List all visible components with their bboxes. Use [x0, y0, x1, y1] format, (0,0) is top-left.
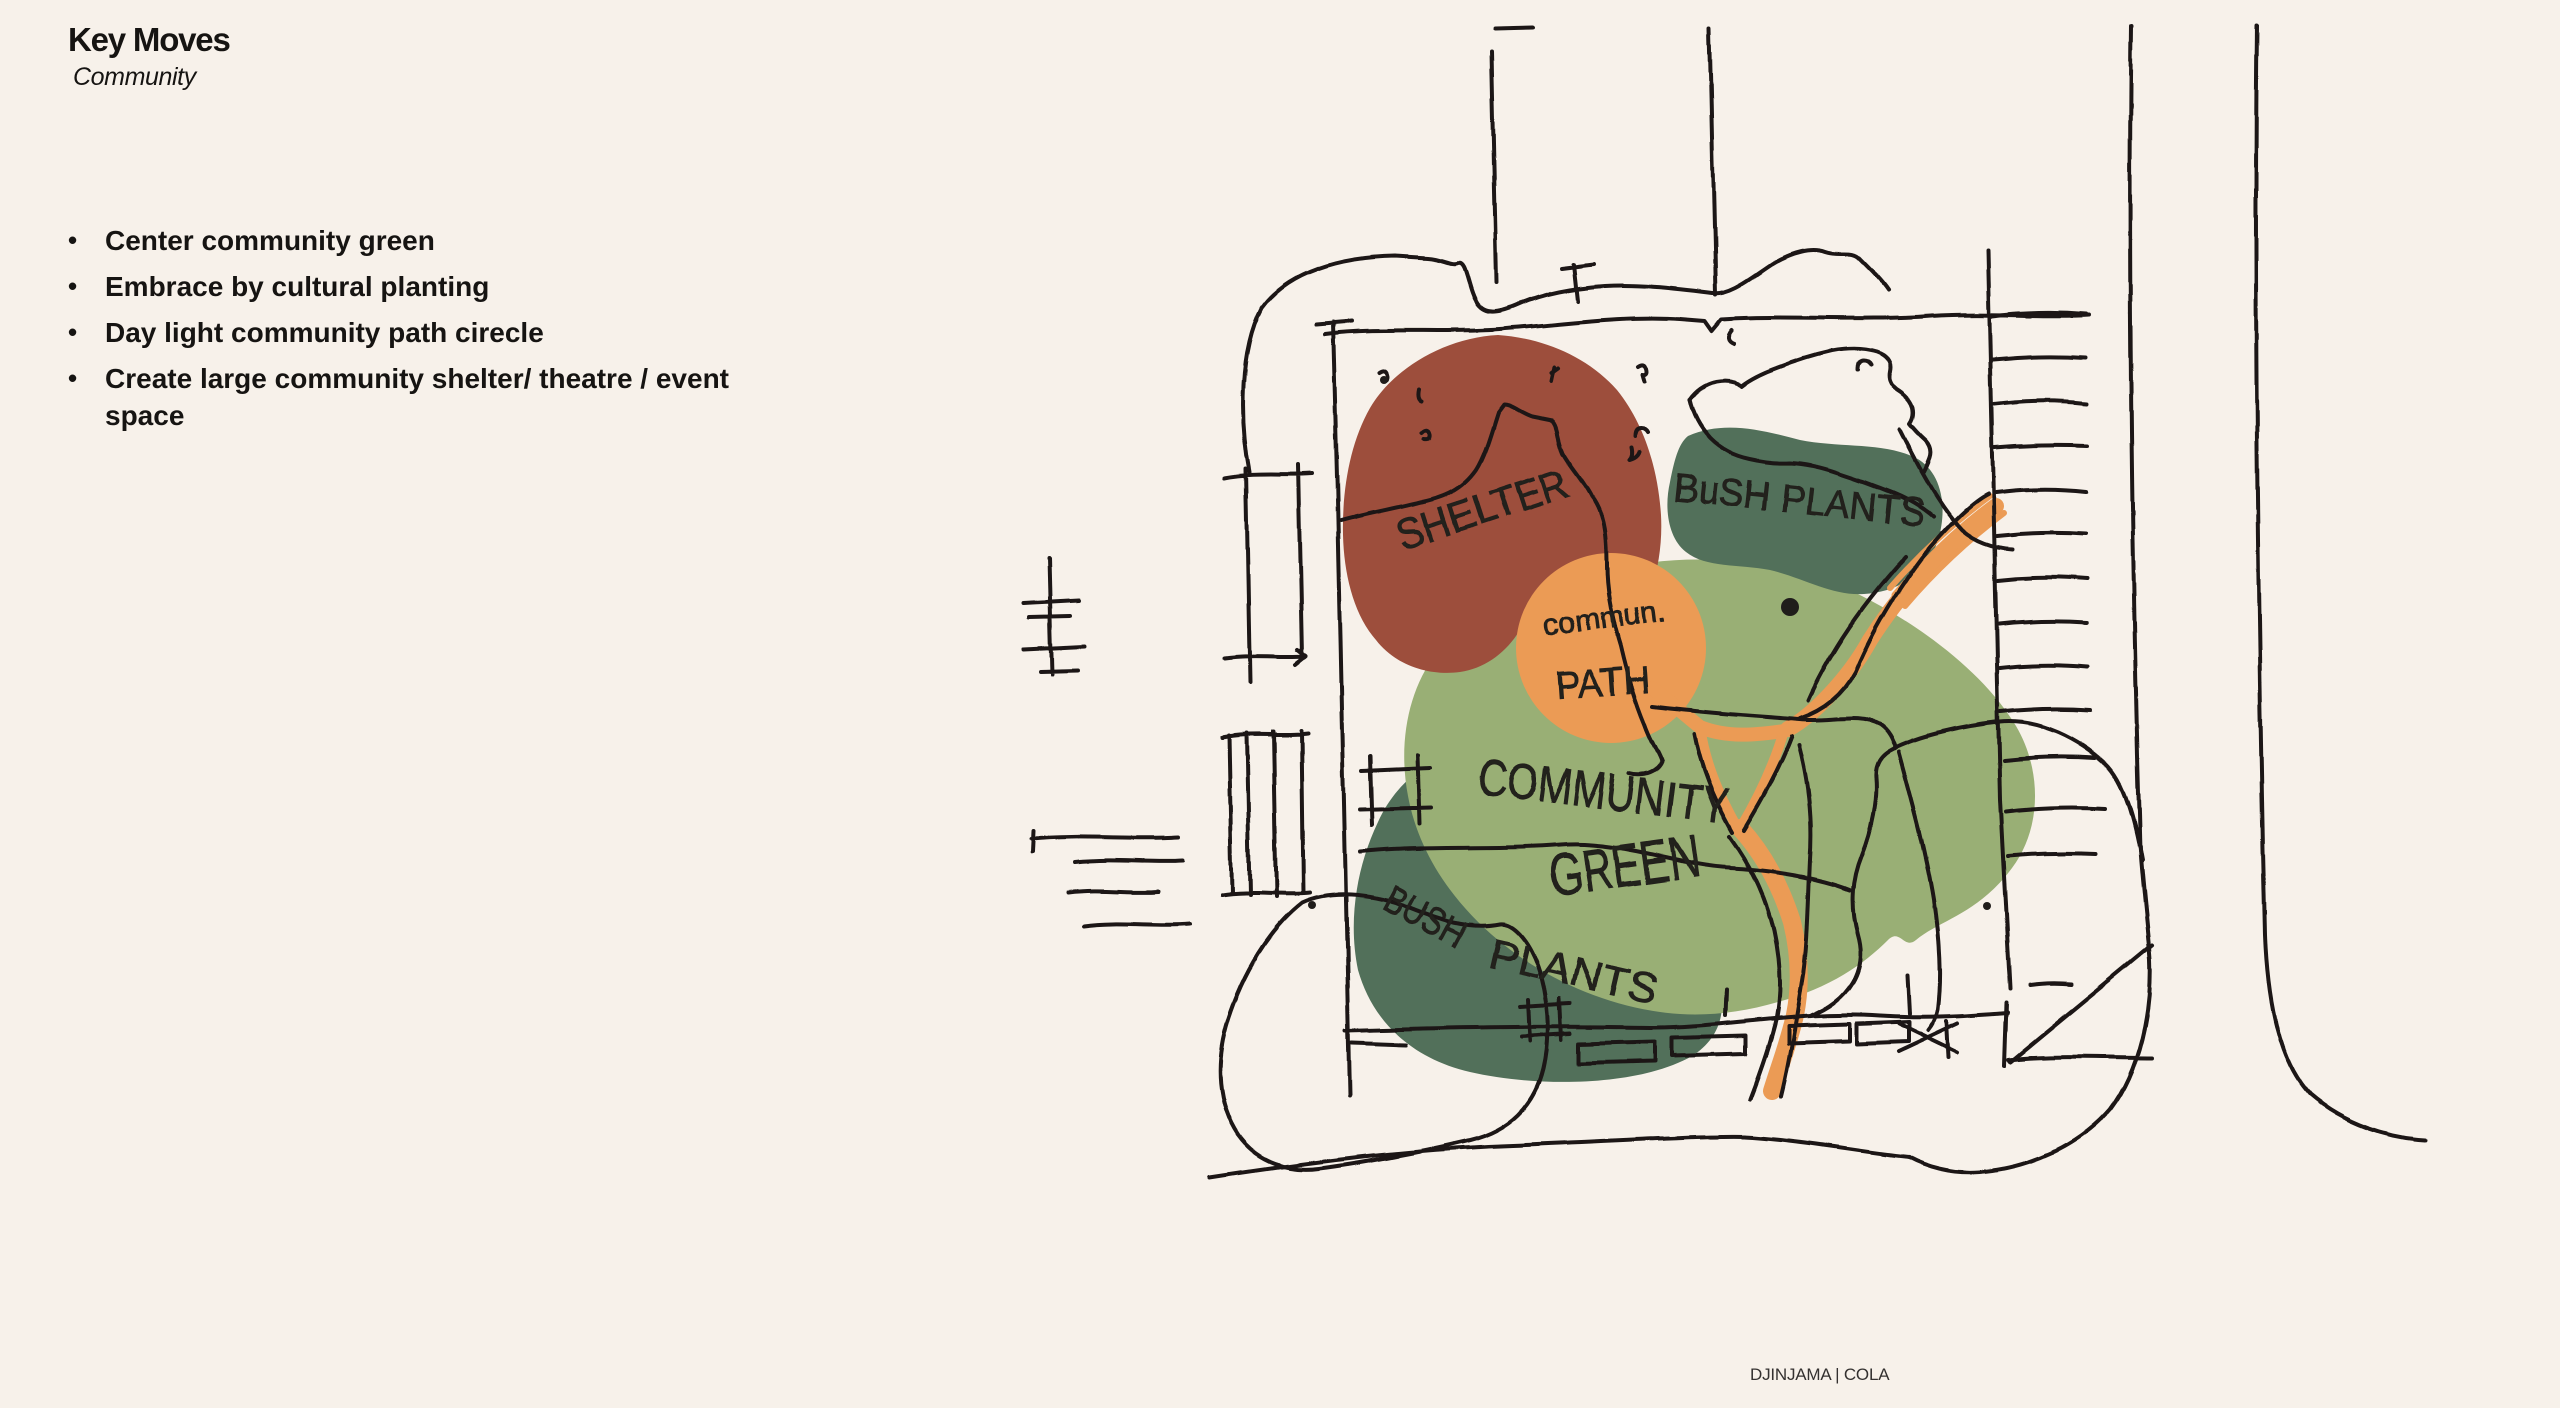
svg-text:PATH: PATH: [1554, 658, 1653, 707]
